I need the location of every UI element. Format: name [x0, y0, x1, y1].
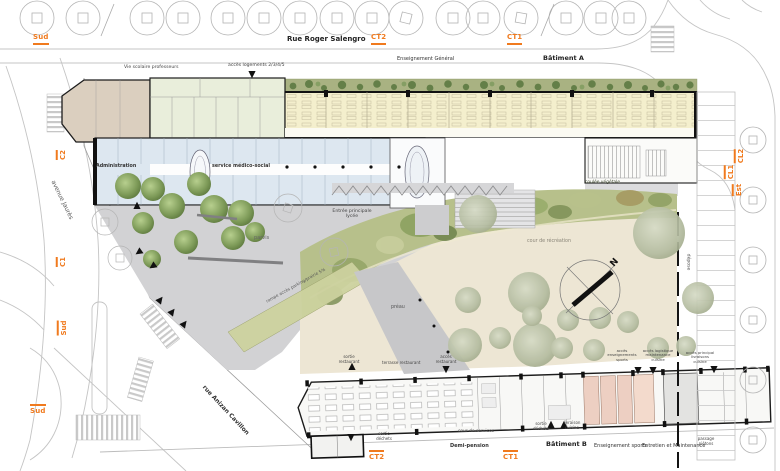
cour-recreation-label: cour de récréation	[527, 239, 571, 245]
corner-block	[62, 80, 150, 142]
preau-label: préau	[391, 305, 405, 311]
street-name-top: Rue Roger Salengro	[287, 35, 366, 43]
demi-pension-label: Demi-pension	[450, 444, 489, 450]
acces-logements-label: accès logements 2/3/4/5	[228, 63, 285, 68]
administration-label: Administration	[96, 164, 136, 170]
transport-label-sud-bottom: Sud	[30, 404, 46, 415]
site-plan: Rue Roger Salengro Sud CT2 CT1 Bâtiment …	[0, 0, 780, 471]
transport-label-cl1: CL1	[724, 165, 735, 179]
sortie-restaurant-label: sortie restaurant	[339, 355, 360, 364]
entrance-path	[415, 205, 449, 235]
transport-label-ct2-bottom: CT2	[369, 450, 384, 461]
vie-scolaire-block	[150, 78, 285, 138]
terrasse-restaurant-label: terrasse restaurant	[382, 361, 420, 366]
sortie-dechets-label-west: sortie déchets	[376, 432, 392, 441]
transport-label-ct2-top: CT2	[371, 34, 386, 45]
acces-principal-livraisons-label: accès principal livraisons cuisine	[686, 351, 714, 364]
transport-label-ct1-top: CT1	[507, 34, 522, 45]
transport-label-est: Est	[732, 184, 743, 196]
street-trees	[20, 1, 646, 36]
coulee-vegetale-label: coulée végétale	[585, 180, 620, 185]
transport-label-c1: C1	[56, 257, 67, 267]
cour-de-services-label: cour de services	[458, 429, 494, 434]
transport-label-cl2: CL2	[734, 149, 745, 163]
transport-label-sud-top: Sud	[33, 34, 49, 45]
vestiaire-room	[583, 376, 600, 424]
livraison-cuisine-label: livraison cuisine	[564, 421, 581, 430]
service-medico-social-label: service médico-social	[212, 164, 270, 170]
maintenance-room	[663, 373, 699, 424]
entree-principale-label: Entrée principale lycée	[332, 209, 371, 220]
parking-strip	[697, 92, 735, 460]
sortie-dechets-label-east: sortie déchets	[533, 422, 549, 431]
vestiaire-room	[617, 375, 633, 423]
site-plan-drawing	[0, 0, 780, 471]
restaurant-tables	[307, 382, 473, 431]
parvis-label: parvis	[254, 236, 269, 242]
transport-label-ct1-bottom: CT1	[503, 450, 518, 461]
passage-pietons-label: passage piétons	[698, 437, 715, 446]
vestiaire-room	[600, 376, 617, 424]
enseignement-sports-label: Enseignement sports	[594, 444, 647, 450]
vie-scolaire-label: Vie scolaire professeurs	[124, 65, 179, 70]
enseignement-general-label: Enseignement Général	[397, 57, 454, 63]
sports-room	[633, 374, 654, 423]
batiment-a-label: Bâtiment A	[543, 55, 584, 63]
depose-label: dépose	[685, 254, 690, 271]
acces-restaurant-label: accès restaurant	[436, 355, 457, 364]
transport-label-c2: C2	[56, 150, 67, 160]
entretien-maintenance-label: Entretien et Maintenance	[642, 444, 705, 450]
batiment-b-label: Bâtiment B	[546, 441, 587, 449]
acces-enseignements-sports-label: accès enseignements sports	[607, 349, 636, 362]
acces-logistique-label: accès logistique maintenance cuisine	[643, 349, 674, 362]
transport-label-sud-west: Sud	[57, 320, 68, 335]
